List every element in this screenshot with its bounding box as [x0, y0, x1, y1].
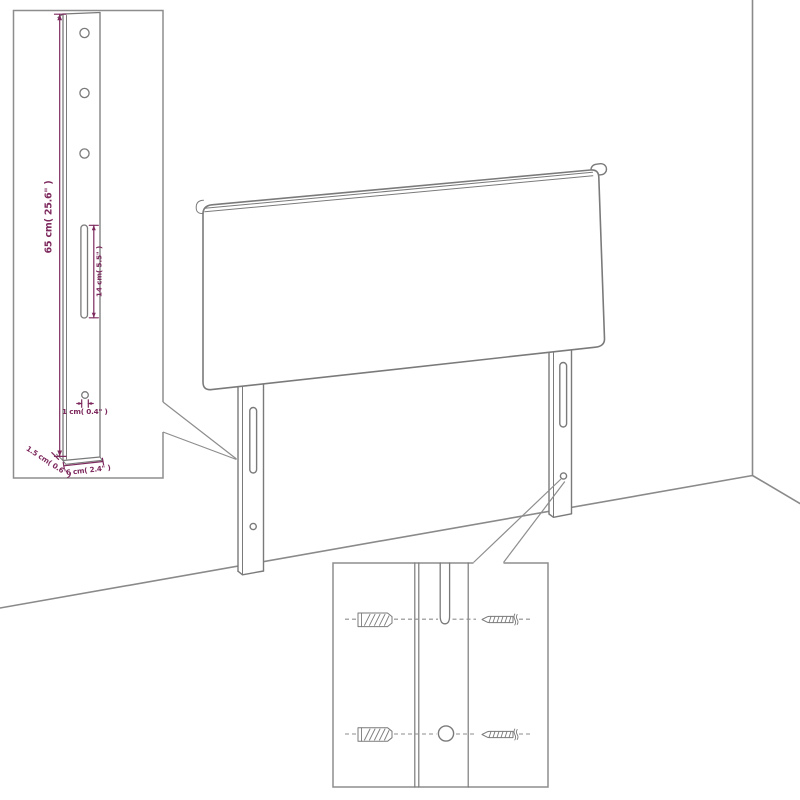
- mount-detail-leg-strip: [415, 563, 468, 787]
- dimension-slot: 14 cm( 5.5" ): [89, 225, 103, 317]
- floor-line-right: [753, 476, 800, 504]
- callout-line-upper: [163, 402, 237, 459]
- slot-dim-arrow-down: [92, 313, 96, 318]
- assembly-diagram: 65 cm( 25.6" ) 14 cm( 5.5" ) 1 cm( 0.4" …: [0, 0, 800, 800]
- detail-leg-bottom-edge: [63, 457, 100, 461]
- detail-hole-2: [80, 88, 89, 97]
- wall-plug-icon: [358, 613, 392, 627]
- callout-line-right: [504, 482, 565, 563]
- slot-dim-label: 14 cm( 5.5" ): [95, 246, 104, 297]
- detail-hole-1: [80, 28, 89, 37]
- dimension-depth: 1.5 cm( 0.6" ): [25, 444, 74, 480]
- depth-dim-label: 1.5 cm( 0.6" ): [25, 444, 74, 480]
- height-dim-label: 65 cm( 25.6" ): [44, 181, 55, 254]
- diagram-canvas: 65 cm( 25.6" ) 14 cm( 5.5" ) 1 cm( 0.4" …: [0, 0, 800, 800]
- detail-hole-3: [80, 149, 89, 158]
- strip-hole: [438, 726, 453, 741]
- leg-detail-drawing: [57, 13, 103, 465]
- hole-dim-label: 1 cm( 0.4" ): [62, 407, 108, 416]
- mounting-detail-callout: [333, 479, 565, 787]
- top-roll-left-hook: [196, 200, 203, 213]
- screw-head-edge-2: [516, 615, 518, 625]
- left-leg-body: [238, 374, 264, 575]
- right-leg-slot: [560, 363, 567, 428]
- alignment-dashes: [345, 619, 531, 734]
- callout-line-left: [474, 479, 562, 563]
- dimension-hole: 1 cm( 0.4" ): [62, 400, 108, 416]
- screw-icon: [482, 614, 518, 625]
- wall-plug-icon: [358, 728, 392, 742]
- detail-leg-top-edge: [58, 13, 100, 18]
- screw-icon: [482, 729, 518, 740]
- detail-slot: [81, 225, 88, 318]
- floor-line-left: [0, 476, 753, 609]
- headboard-left-leg: [238, 374, 264, 575]
- screw-head-edge-1: [514, 729, 516, 740]
- slot-dim-arrow-up: [92, 225, 96, 230]
- left-leg-slot: [250, 408, 257, 474]
- strip-slot: [440, 563, 449, 624]
- right-leg-hole: [560, 473, 566, 479]
- left-leg-hole: [250, 523, 256, 529]
- screw-head-edge-2: [516, 730, 518, 740]
- detail-small-hole: [82, 392, 89, 399]
- headboard-panel: [196, 163, 607, 390]
- screw-head-edge-1: [514, 614, 516, 625]
- headboard-right-leg: [549, 346, 572, 517]
- callout-line-lower: [163, 432, 237, 460]
